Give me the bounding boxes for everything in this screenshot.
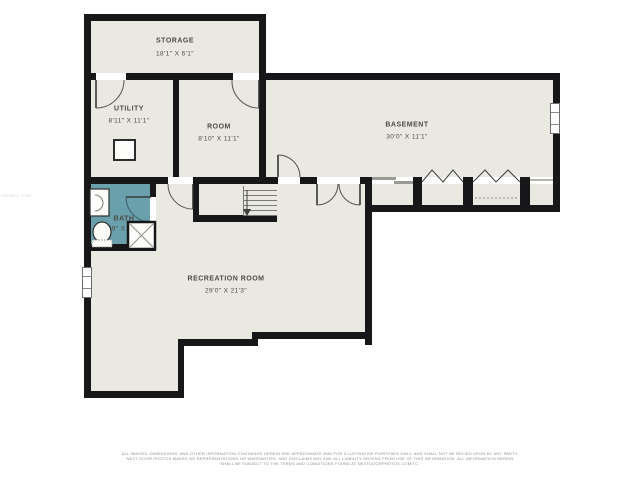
- utility-door-arc: [96, 80, 124, 108]
- sink-icon: [90, 189, 109, 216]
- floorplan-symbols: [0, 0, 640, 480]
- disclaimer: ALL IMAGES, DIMENSIONS, AND OTHER INFORM…: [0, 451, 640, 466]
- watermark: DERWLL FO82: [1, 193, 32, 198]
- bath-door-arc: [126, 197, 151, 222]
- recreation-door-arc: [168, 184, 193, 209]
- stairs-direction-arrow: [243, 190, 251, 216]
- bifold-door-icon: [422, 170, 520, 182]
- basement-door-arc: [278, 155, 300, 177]
- shower-icon: [128, 222, 155, 249]
- floorplan-canvas: STORAGE 18'1" X 6'1" UTILITY 8'11" X 11'…: [0, 0, 640, 480]
- double-door-arcs: [317, 184, 360, 205]
- room-door-arc: [232, 80, 259, 108]
- disclaimer-line-3: SHALL BE SUBJECT TO THE TERMS AND CONDIT…: [0, 461, 640, 466]
- toilet-icon: [92, 222, 112, 247]
